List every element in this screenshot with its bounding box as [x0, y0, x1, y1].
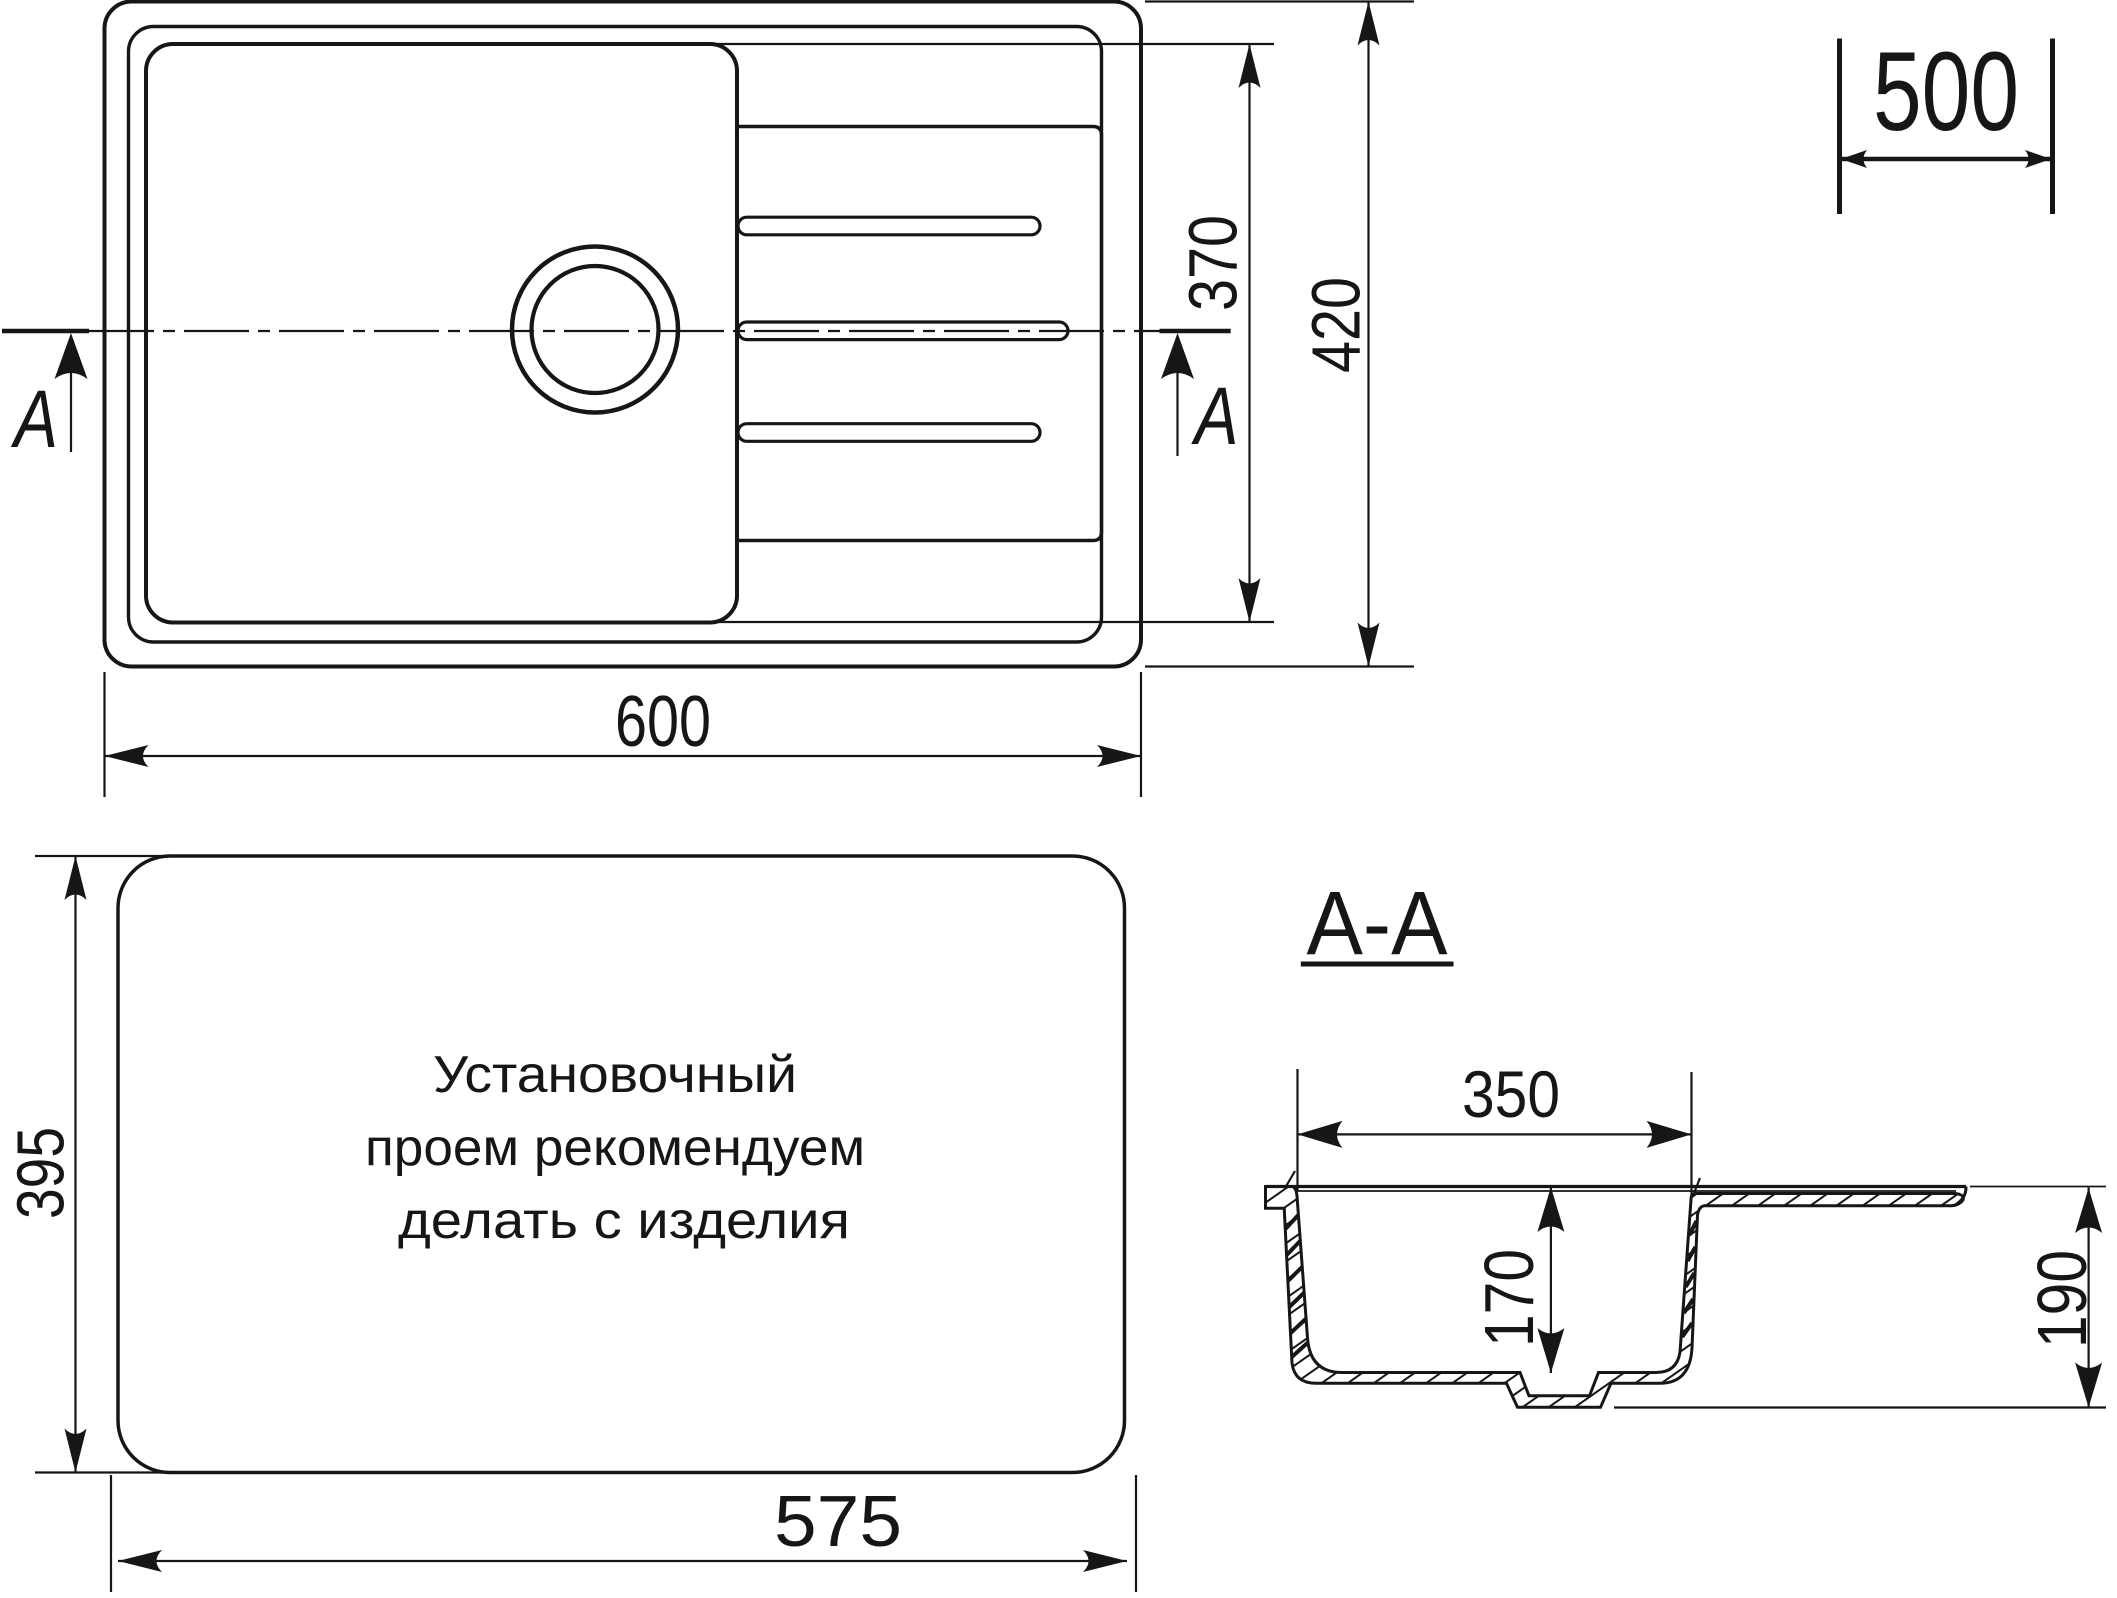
svg-text:575: 575 — [774, 1482, 902, 1562]
svg-text:A: A — [1190, 371, 1238, 462]
svg-text:A-A: A-A — [1307, 874, 1448, 974]
svg-text:проем рекомендуем: проем рекомендуем — [365, 1119, 865, 1177]
svg-text:делать с изделия: делать с изделия — [398, 1192, 850, 1250]
svg-text:600: 600 — [615, 682, 711, 762]
svg-text:395: 395 — [4, 1127, 79, 1219]
svg-text:370: 370 — [1175, 215, 1252, 311]
svg-text:Установочный: Установочный — [433, 1046, 797, 1104]
svg-text:500: 500 — [1873, 29, 2019, 154]
svg-text:190: 190 — [2023, 1250, 2101, 1348]
svg-text:420: 420 — [1298, 277, 1375, 373]
svg-text:350: 350 — [1462, 1057, 1560, 1131]
svg-text:A: A — [10, 374, 58, 465]
svg-text:170: 170 — [1470, 1249, 1548, 1347]
